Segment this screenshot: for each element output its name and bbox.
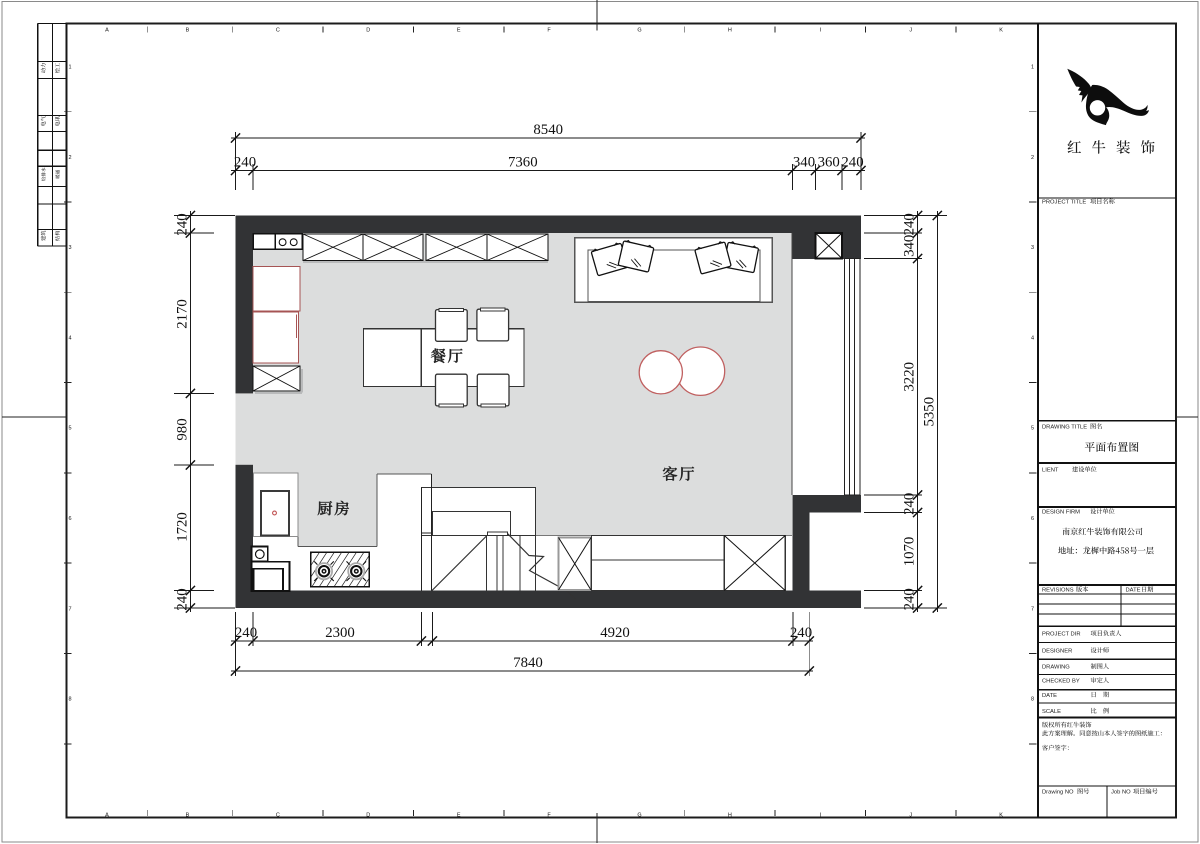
svg-text:B: B xyxy=(186,28,190,34)
svg-text:2: 2 xyxy=(1031,155,1034,161)
svg-text:1720: 1720 xyxy=(174,512,190,542)
svg-text:E: E xyxy=(457,28,461,34)
svg-text:DATE: DATE xyxy=(1126,588,1141,594)
svg-text:6: 6 xyxy=(1031,516,1034,522)
svg-text:H: H xyxy=(728,28,732,34)
svg-text:H: H xyxy=(728,812,732,818)
svg-text:7840: 7840 xyxy=(513,655,543,671)
svg-text:240: 240 xyxy=(902,588,918,610)
svg-text:SCALE: SCALE xyxy=(1042,709,1061,715)
svg-text:240: 240 xyxy=(902,493,918,515)
svg-text:4920: 4920 xyxy=(600,625,630,641)
svg-text:5: 5 xyxy=(68,426,71,432)
svg-text:I: I xyxy=(820,28,822,34)
svg-text:980: 980 xyxy=(174,418,190,440)
svg-text:2170: 2170 xyxy=(174,299,190,329)
svg-text:G: G xyxy=(637,28,641,34)
svg-text:4: 4 xyxy=(68,335,71,341)
svg-text:F: F xyxy=(547,28,551,34)
svg-text:DRAWING: DRAWING xyxy=(1042,665,1070,671)
svg-text:C: C xyxy=(276,28,280,34)
svg-text:240: 240 xyxy=(790,625,812,641)
svg-text:240: 240 xyxy=(174,213,190,235)
svg-text:240: 240 xyxy=(174,588,190,610)
svg-text:8: 8 xyxy=(1031,697,1034,703)
svg-text:8: 8 xyxy=(68,697,71,703)
svg-text:1: 1 xyxy=(1031,65,1034,71)
svg-text:A: A xyxy=(105,812,109,818)
svg-text:2300: 2300 xyxy=(325,625,355,641)
svg-text:D: D xyxy=(366,812,370,818)
svg-text:5: 5 xyxy=(1031,426,1034,432)
svg-text:240: 240 xyxy=(902,213,918,235)
svg-text:DESIGNER: DESIGNER xyxy=(1042,649,1072,655)
svg-text:PROJECT TITLE: PROJECT TITLE xyxy=(1042,200,1086,206)
svg-text:C: C xyxy=(276,812,280,818)
svg-text:K: K xyxy=(999,812,1003,818)
svg-text:1: 1 xyxy=(68,65,71,71)
svg-text:3220: 3220 xyxy=(902,362,918,392)
svg-text:3: 3 xyxy=(1031,245,1034,251)
svg-text:Job NO: Job NO xyxy=(1111,790,1131,796)
svg-text:2: 2 xyxy=(68,155,71,161)
svg-text:Drawing NO: Drawing NO xyxy=(1042,790,1074,796)
svg-text:340: 340 xyxy=(793,155,815,171)
svg-text:240: 240 xyxy=(234,155,256,171)
svg-text:4: 4 xyxy=(1031,335,1034,341)
svg-text:REVISIONS: REVISIONS xyxy=(1042,588,1074,594)
svg-text:CHECKED BY: CHECKED BY xyxy=(1042,679,1080,685)
svg-text:240: 240 xyxy=(235,625,257,641)
svg-text:K: K xyxy=(999,28,1003,34)
svg-text:PROJECT DIR: PROJECT DIR xyxy=(1042,632,1081,638)
svg-text:J: J xyxy=(909,812,912,818)
svg-text:360: 360 xyxy=(818,155,840,171)
svg-text:DRAWING TITLE: DRAWING TITLE xyxy=(1042,425,1087,431)
svg-text:E: E xyxy=(457,812,461,818)
svg-text:7: 7 xyxy=(68,606,71,612)
svg-text:7: 7 xyxy=(1031,606,1034,612)
svg-text:8540: 8540 xyxy=(533,122,563,138)
svg-text:6: 6 xyxy=(68,516,71,522)
svg-text:B: B xyxy=(186,812,190,818)
svg-text:G: G xyxy=(637,812,641,818)
svg-text:D: D xyxy=(366,28,370,34)
svg-text:3: 3 xyxy=(68,245,71,251)
svg-text:7360: 7360 xyxy=(508,155,538,171)
svg-text:1070: 1070 xyxy=(902,537,918,567)
svg-text:340: 340 xyxy=(902,235,918,257)
svg-text:DESIGN FIRM: DESIGN FIRM xyxy=(1042,510,1080,516)
svg-text:DATE: DATE xyxy=(1042,693,1057,699)
svg-text:A: A xyxy=(105,28,109,34)
svg-text:J: J xyxy=(909,28,912,34)
svg-text:5350: 5350 xyxy=(921,397,937,427)
svg-text:LIENT: LIENT xyxy=(1042,468,1059,474)
svg-text:240: 240 xyxy=(841,155,863,171)
